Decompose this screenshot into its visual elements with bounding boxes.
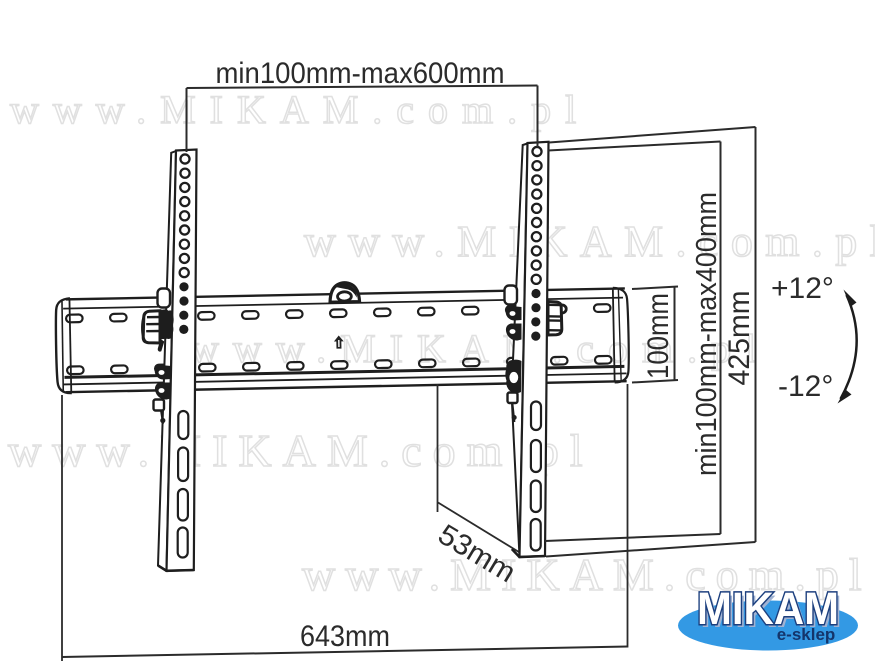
svg-text:www.MIKAM.com.pl: www.MIKAM.com.pl: [304, 217, 875, 266]
svg-text:www.MIKAM.com.pl: www.MIKAM.com.pl: [8, 425, 594, 476]
svg-text:min100mm-max600mm: min100mm-max600mm: [216, 57, 505, 90]
svg-text:643mm: 643mm: [300, 620, 390, 653]
svg-text:425mm: 425mm: [723, 291, 756, 386]
svg-text:min100mm-max400mm: min100mm-max400mm: [691, 192, 723, 476]
svg-text:e-sklep: e-sklep: [777, 625, 836, 644]
svg-text:-12°: -12°: [778, 370, 833, 403]
svg-text:www.MIKAM.com.pl: www.MIKAM.com.pl: [10, 87, 590, 132]
svg-text:100mm: 100mm: [642, 293, 675, 379]
svg-text:+12°: +12°: [771, 272, 834, 305]
